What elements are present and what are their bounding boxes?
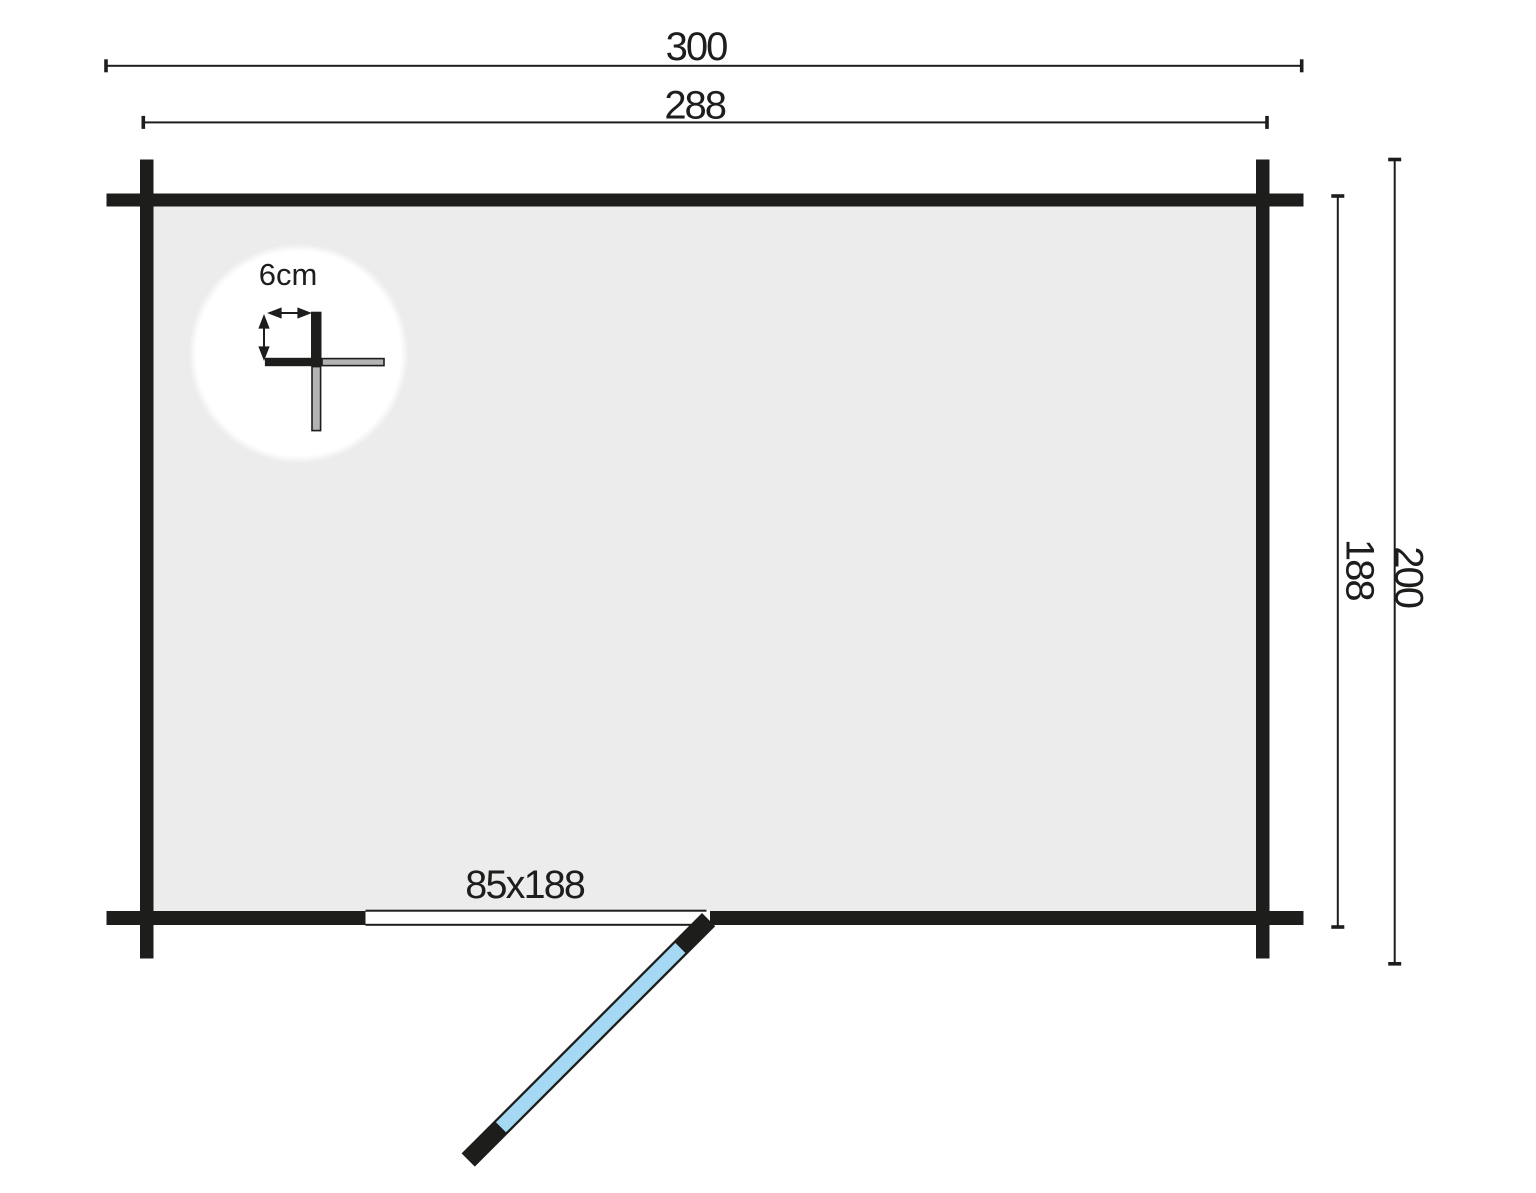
svg-text:288: 288 <box>664 84 725 128</box>
svg-text:188: 188 <box>1338 539 1382 600</box>
svg-text:6cm: 6cm <box>259 257 318 292</box>
svg-text:200: 200 <box>1387 546 1431 607</box>
svg-text:300: 300 <box>666 25 727 69</box>
svg-text:85x188: 85x188 <box>465 863 585 907</box>
